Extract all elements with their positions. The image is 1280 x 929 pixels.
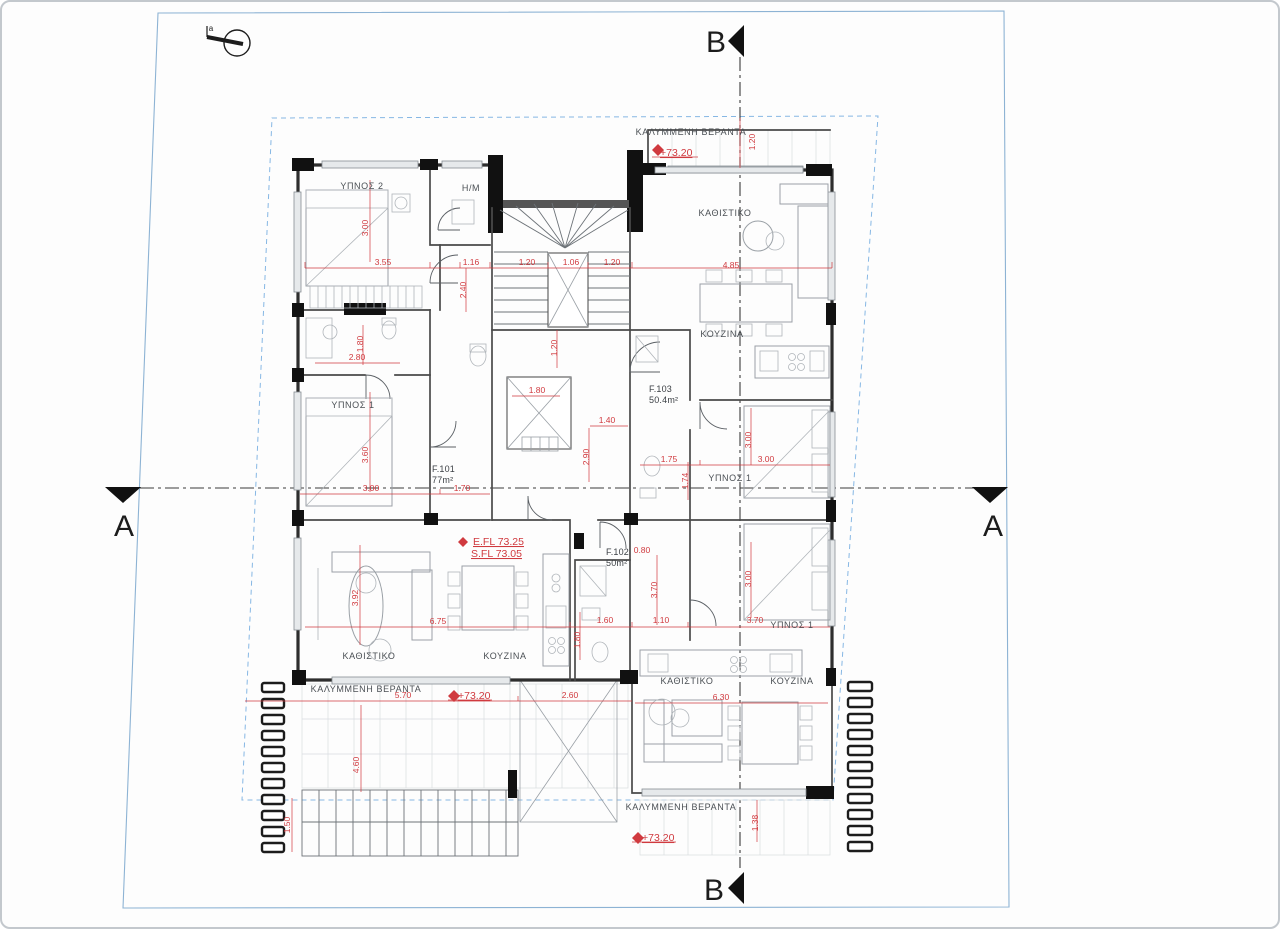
dimension-label: 6.75 [430, 616, 447, 626]
room-label: ΚΑΘΙΣΤΙΚΟ [342, 651, 395, 661]
room-label: H/M [462, 183, 480, 193]
dimension-label: 1.20 [519, 257, 536, 267]
section-marker-a-left: A [105, 487, 141, 543]
section-arrow-a-left [105, 487, 141, 503]
dimension-label: 3.60 [360, 446, 370, 463]
section-letter-a-left: A [114, 510, 134, 543]
dimension-label: 3.70 [747, 615, 764, 625]
section-marker-b-top: B [706, 25, 744, 59]
apartment-label: 50m² [606, 558, 627, 568]
room-label: ΚΑΘΙΣΤΙΚΟ [698, 208, 751, 218]
dimension-label: 3.00 [360, 219, 370, 236]
level-label: E.FL 73.25 [473, 536, 524, 548]
dimension-label: 3.55 [375, 257, 392, 267]
dimension-label: 1.06 [563, 257, 580, 267]
room-label: ΚΑΘΙΣΤΙΚΟ [660, 676, 713, 686]
section-letter-a-right: A [983, 510, 1003, 543]
dimension-label: 1.10 [653, 615, 670, 625]
section-arrow-a-right [972, 487, 1008, 503]
level-labels: +73.20+73.20+73.20E.FL 73.25S.FL 73.05 [458, 147, 693, 844]
room-label: ΥΠΝΟΣ 2 [340, 181, 383, 191]
room-label: ΚΑΛΥΜΜΕΝΗ ΒΕΡΑΝΤΑ [636, 127, 747, 137]
dimension-label: 3.00 [743, 431, 753, 448]
dimension-label: 1.50 [282, 816, 292, 833]
room-label: ΚΑΛΥΜΜΕΝΗ ΒΕΡΑΝΤΑ [626, 802, 737, 812]
floor-plan-drawing: B B A A a ΥΠΝΟΣ 2H/MΚΑΘΙΣΤΙΚΟΚΟΥΖΙΝΑΥΠΝΟ… [2, 2, 1278, 927]
apartment-label: F.103 [649, 384, 672, 394]
dimension-label: 3.92 [350, 589, 360, 606]
level-label: +73.20 [458, 690, 491, 702]
section-marker-b-bottom: B [704, 872, 744, 907]
dimension-label: 2.40 [458, 281, 468, 298]
dimension-label: 1.20 [549, 339, 559, 356]
dimension-label: 1.74 [680, 472, 690, 489]
stair-core [488, 150, 643, 330]
section-marker-a-right: A [972, 487, 1008, 543]
louver-strip-right [848, 682, 872, 851]
north-arrow: a [207, 24, 250, 56]
section-arrow-b-bottom [728, 872, 744, 904]
level-label: S.FL 73.05 [471, 548, 522, 560]
level-label: +73.20 [642, 832, 675, 844]
apartment-label: 77m² [432, 475, 453, 485]
dimension-label: 3.70 [649, 581, 659, 598]
veranda-tiles [302, 130, 830, 855]
dimension-label: 2.90 [581, 448, 591, 465]
dimension-label: 1.80 [355, 335, 365, 352]
apartment-label: F.101 [432, 464, 455, 474]
dimension-label: 1.20 [747, 133, 757, 150]
dimension-label: 1.38 [750, 814, 760, 831]
dimension-label: 1.80 [529, 385, 546, 395]
dimension-label: 0.80 [634, 545, 651, 555]
room-label: ΚΟΥΖΙΝΑ [483, 651, 526, 661]
dimension-label: 4.60 [351, 756, 361, 773]
dimension-label: 3.00 [758, 454, 775, 464]
room-label: ΥΠΝΟΣ 1 [708, 473, 751, 483]
section-arrow-b-top [728, 25, 744, 57]
room-label: ΚΟΥΖΙΝΑ [770, 676, 813, 686]
room-label: ΥΠΝΟΣ 1 [331, 400, 374, 410]
dimension-label: 4.85 [723, 260, 740, 270]
apartment-label: F.102 [606, 547, 629, 557]
dimension-label: 5.70 [395, 690, 412, 700]
dimension-label: 1.80 [572, 631, 582, 648]
section-letter-b-top: B [706, 26, 726, 59]
dimension-label: 1.20 [604, 257, 621, 267]
dimension-label: 1.75 [661, 454, 678, 464]
louver-strip-left [262, 683, 284, 852]
room-label: ΚΟΥΖΙΝΑ [700, 329, 743, 339]
dimension-label: 3.00 [743, 570, 753, 587]
exterior-stairs [302, 770, 518, 856]
dimension-label: 6.30 [713, 692, 730, 702]
section-letter-b-bottom: B [704, 874, 724, 907]
room-label: ΥΠΝΟΣ 1 [770, 620, 813, 630]
dimension-label: 1.60 [597, 615, 614, 625]
floor-plan-sheet: B B A A a ΥΠΝΟΣ 2H/MΚΑΘΙΣΤΙΚΟΚΟΥΖΙΝΑΥΠΝΟ… [0, 0, 1280, 929]
dimension-label: 1.40 [599, 415, 616, 425]
dimension-label: 3.00 [363, 483, 380, 493]
dimension-label: 1.16 [463, 257, 480, 267]
apartment-label: 50.4m² [649, 395, 678, 405]
dimension-label: 1.70 [454, 483, 471, 493]
site-boundary [123, 11, 1009, 908]
north-label: a [209, 24, 214, 33]
dimension-label: 2.60 [562, 690, 579, 700]
level-label: +73.20 [660, 147, 693, 159]
dimension-label: 2.80 [349, 352, 366, 362]
